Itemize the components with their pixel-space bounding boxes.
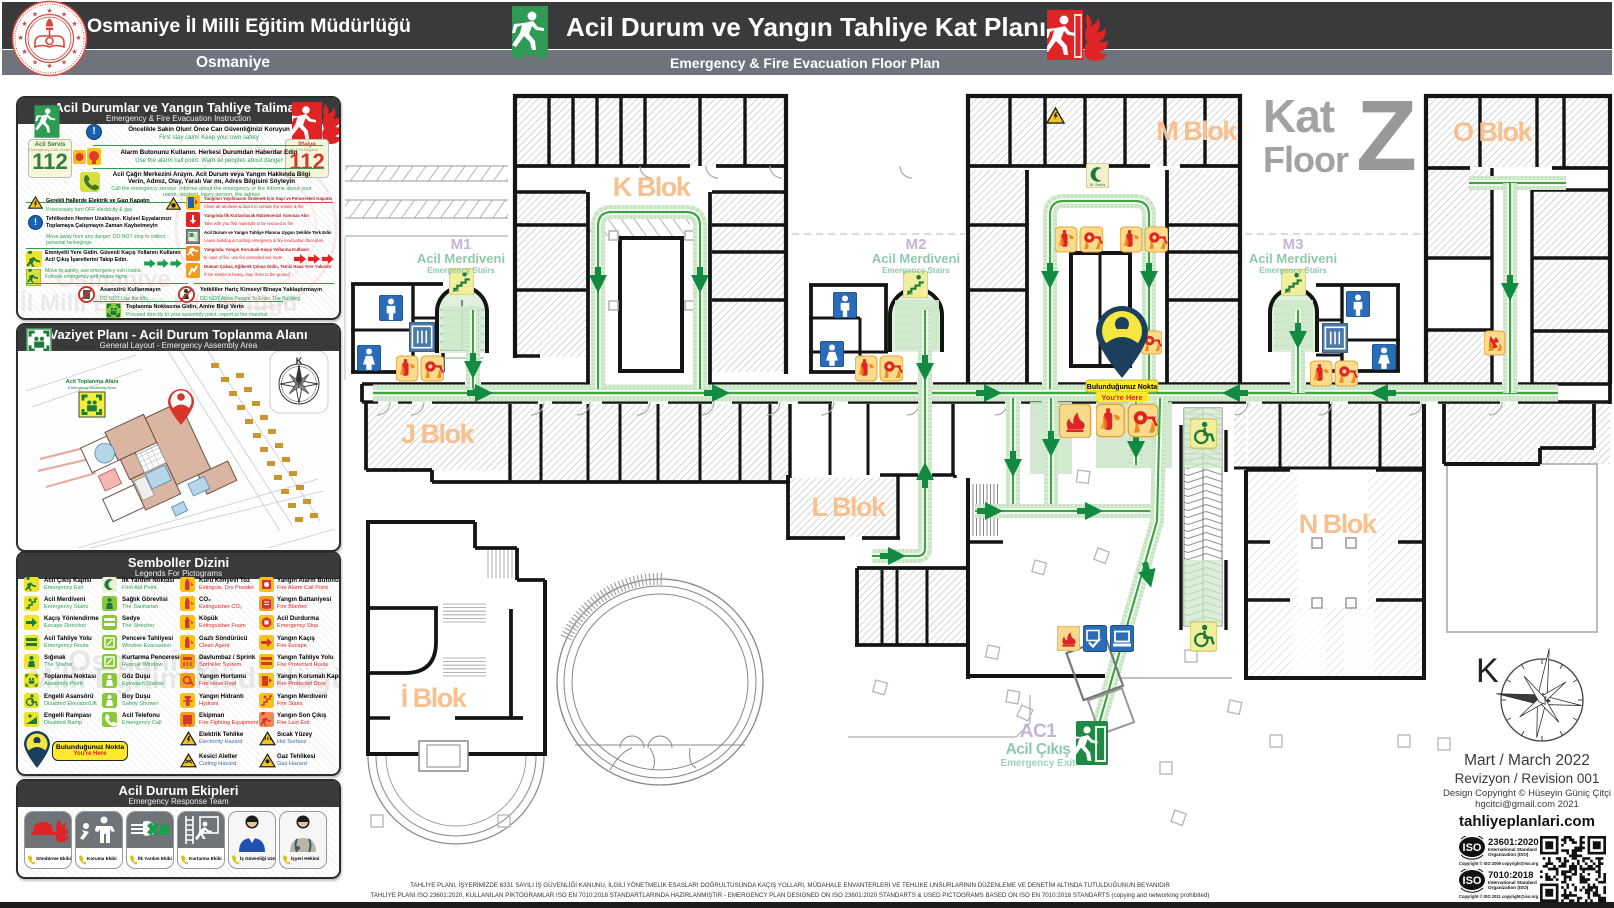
svg-text:M Blok: M Blok xyxy=(1156,116,1238,146)
svg-text:Copyright © ISO 2011 copyright: Copyright © ISO 2011 copyright@iso.org xyxy=(1459,894,1539,899)
svg-text:Floor: Floor xyxy=(1263,139,1349,180)
svg-text:AC1: AC1 xyxy=(1020,721,1057,742)
svg-text:Kat: Kat xyxy=(1263,90,1335,142)
svg-text:K Blok: K Blok xyxy=(613,172,692,202)
svg-text:Z: Z xyxy=(1356,80,1417,192)
svg-text:Copyright © ISO 2009 copyright: Copyright © ISO 2009 copyright@iso.org xyxy=(1459,861,1539,866)
svg-text:Emergency Stairs: Emergency Stairs xyxy=(882,266,950,275)
svg-text:İ Blok: İ Blok xyxy=(401,683,468,713)
svg-text:Emergency Exit: Emergency Exit xyxy=(1000,758,1076,769)
svg-text:Emergency Stairs: Emergency Stairs xyxy=(427,266,495,275)
svg-text:ISO: ISO xyxy=(1463,842,1482,854)
svg-text:K: K xyxy=(1476,652,1499,690)
svg-text:Emergency Stairs: Emergency Stairs xyxy=(1259,266,1327,275)
svg-text:Organization (ISO): Organization (ISO) xyxy=(1488,852,1529,857)
svg-text:Acil Merdiveni: Acil Merdiveni xyxy=(1249,251,1337,266)
svg-text:Emergency Assembly Area: Emergency Assembly Area xyxy=(68,385,117,390)
svg-text:L Blok: L Blok xyxy=(811,492,886,522)
svg-text:ISO: ISO xyxy=(1463,875,1482,887)
svg-text:J Blok: J Blok xyxy=(401,419,476,449)
svg-text:O Blok: O Blok xyxy=(1453,117,1533,147)
svg-text:You're Here: You're Here xyxy=(1101,393,1142,402)
svg-text:Acil Merdiveni: Acil Merdiveni xyxy=(872,251,960,266)
svg-text:N Blok: N Blok xyxy=(1299,509,1378,539)
svg-text:Organization (ISO): Organization (ISO) xyxy=(1488,885,1529,890)
svg-text:Acil Merdiveni: Acil Merdiveni xyxy=(417,251,505,266)
svg-text:Bulunduğunuz Nokta: Bulunduğunuz Nokta xyxy=(1087,384,1157,391)
svg-text:Acil Çıkış: Acil Çıkış xyxy=(1006,741,1071,758)
